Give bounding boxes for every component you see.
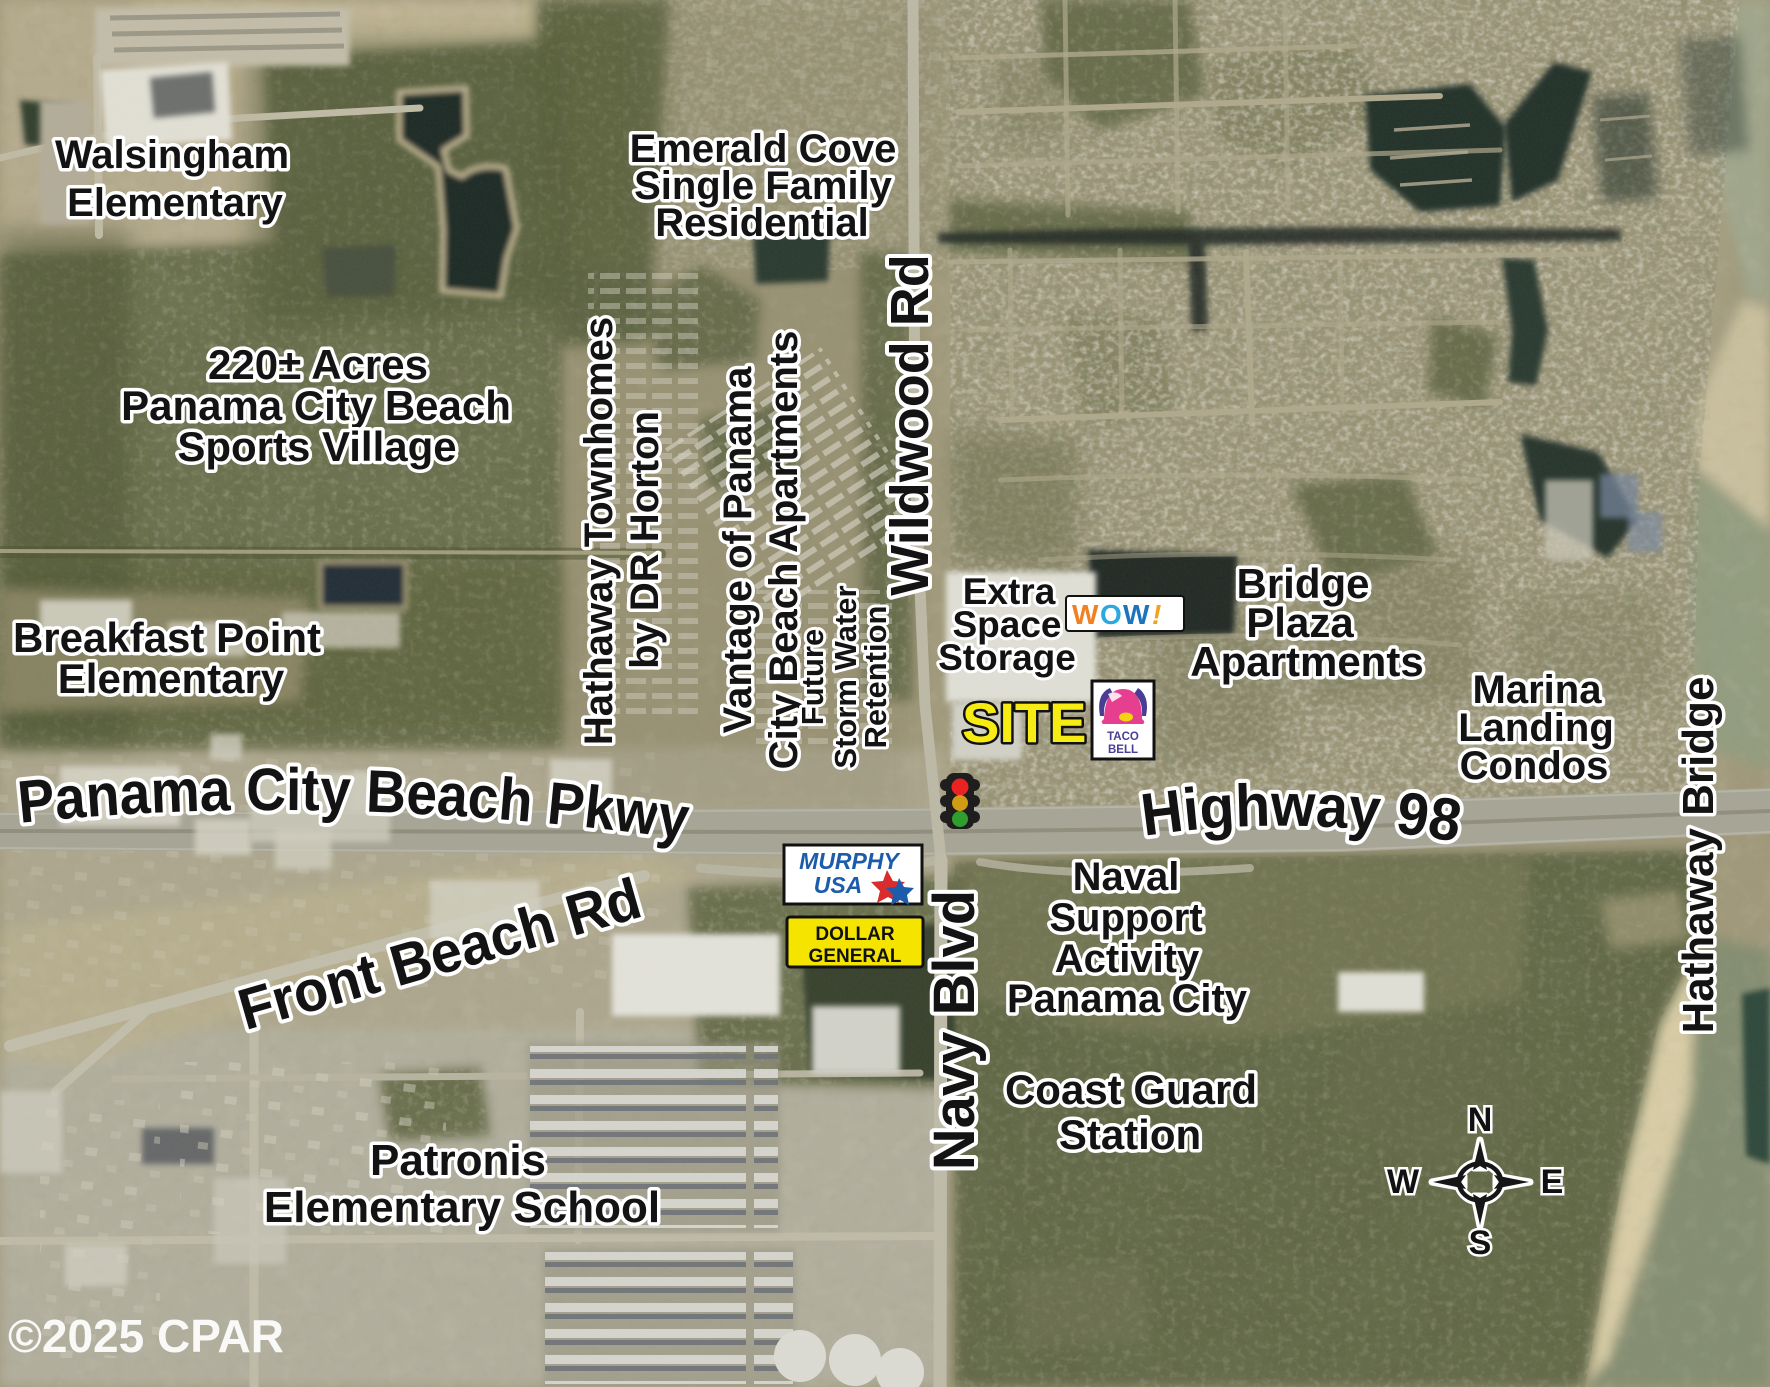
svg-text:Elementary School: Elementary School bbox=[264, 1183, 660, 1232]
svg-text:GENERAL: GENERAL bbox=[809, 946, 902, 967]
svg-text:Retention: Retention bbox=[858, 606, 893, 749]
svg-text:Vantage of Panama: Vantage of Panama bbox=[716, 366, 760, 734]
svg-text:USA: USA bbox=[814, 872, 863, 898]
svg-text:Wildwood Rd: Wildwood Rd bbox=[880, 254, 940, 595]
svg-text:Panama City Beach: Panama City Beach bbox=[121, 382, 511, 429]
svg-text:Sports Village: Sports Village bbox=[177, 423, 456, 470]
svg-text:MURPHY: MURPHY bbox=[799, 848, 901, 874]
svg-text:Navy Blvd: Navy Blvd bbox=[922, 890, 987, 1170]
svg-text:BELL: BELL bbox=[1108, 744, 1138, 756]
svg-text:Storage: Storage bbox=[938, 637, 1076, 678]
svg-text:S: S bbox=[1469, 1224, 1492, 1262]
svg-text:SITE: SITE bbox=[962, 691, 1086, 754]
svg-text:O: O bbox=[1100, 599, 1122, 630]
svg-text:Coast Guard: Coast Guard bbox=[1005, 1066, 1257, 1113]
svg-text:Support: Support bbox=[1049, 896, 1202, 940]
svg-text:Panama City: Panama City bbox=[1007, 977, 1248, 1021]
svg-text:Apartments: Apartments bbox=[1190, 638, 1423, 685]
svg-text:Naval: Naval bbox=[1073, 855, 1180, 899]
svg-text:220± Acres: 220± Acres bbox=[208, 341, 428, 388]
svg-text:Walsingham: Walsingham bbox=[55, 133, 289, 177]
svg-text:W: W bbox=[1123, 599, 1150, 630]
svg-text:Elementary: Elementary bbox=[67, 181, 283, 225]
svg-text:Hathaway Bridge: Hathaway Bridge bbox=[1674, 677, 1723, 1034]
svg-text:!: ! bbox=[1152, 599, 1161, 630]
svg-text:Patronis: Patronis bbox=[370, 1136, 546, 1185]
svg-text:Residential: Residential bbox=[655, 201, 868, 245]
svg-text:Activity: Activity bbox=[1055, 937, 1200, 981]
svg-text:N: N bbox=[1468, 1101, 1493, 1139]
svg-text:TACO: TACO bbox=[1107, 731, 1139, 743]
svg-text:Condos: Condos bbox=[1460, 744, 1609, 788]
svg-text:Breakfast Point: Breakfast Point bbox=[13, 614, 321, 661]
svg-text:Hathaway Townhomes: Hathaway Townhomes bbox=[577, 317, 621, 745]
svg-text:W: W bbox=[1387, 1163, 1420, 1201]
svg-text:©2025 CPAR: ©2025 CPAR bbox=[8, 1310, 284, 1362]
svg-text:Elementary: Elementary bbox=[58, 655, 285, 702]
svg-text:E: E bbox=[1541, 1163, 1564, 1201]
svg-text:Future: Future bbox=[795, 629, 830, 725]
svg-text:W: W bbox=[1072, 599, 1099, 630]
svg-text:by DR Horton: by DR Horton bbox=[623, 411, 667, 669]
svg-text:DOLLAR: DOLLAR bbox=[815, 924, 894, 945]
svg-text:Station: Station bbox=[1059, 1111, 1201, 1158]
